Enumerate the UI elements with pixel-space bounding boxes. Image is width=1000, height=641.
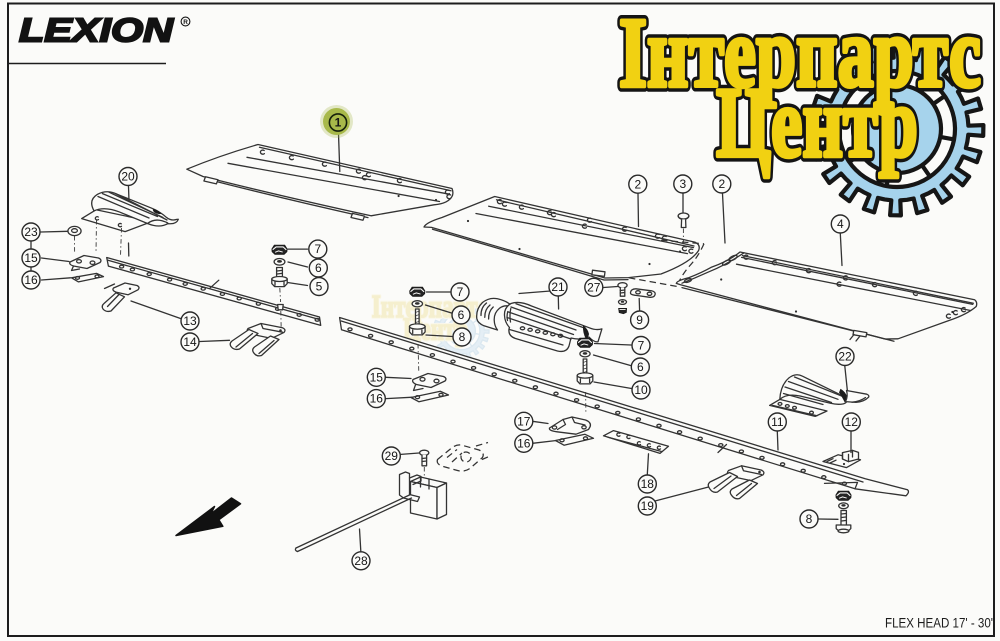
svg-text:11: 11 (771, 415, 784, 429)
svg-text:FLEX HEAD 17' - 30': FLEX HEAD 17' - 30' (885, 616, 993, 632)
svg-text:16: 16 (24, 273, 38, 287)
svg-text:12: 12 (845, 415, 859, 429)
svg-text:1: 1 (335, 116, 342, 130)
svg-text:27: 27 (587, 280, 601, 294)
svg-text:9: 9 (636, 313, 643, 327)
svg-text:4: 4 (837, 217, 844, 231)
svg-text:6: 6 (315, 261, 322, 275)
svg-text:16: 16 (370, 392, 384, 406)
svg-text:2: 2 (718, 177, 725, 191)
svg-text:19: 19 (641, 499, 655, 513)
svg-text:16: 16 (517, 436, 531, 450)
svg-text:29: 29 (385, 449, 399, 463)
svg-text:18: 18 (641, 477, 655, 491)
svg-text:5: 5 (316, 280, 323, 294)
svg-text:21: 21 (551, 280, 565, 294)
svg-text:Центр: Центр (716, 67, 918, 178)
svg-text:7: 7 (457, 285, 464, 299)
svg-text:15: 15 (24, 251, 38, 265)
svg-text:6: 6 (458, 308, 465, 322)
svg-text:7: 7 (638, 339, 645, 353)
svg-text:10: 10 (634, 383, 648, 397)
svg-text:23: 23 (24, 225, 38, 239)
svg-text:17: 17 (517, 414, 531, 428)
svg-text:3: 3 (679, 177, 686, 191)
svg-text:22: 22 (838, 350, 852, 364)
svg-text:LEXION: LEXION (19, 13, 174, 50)
svg-text:8: 8 (806, 512, 813, 526)
svg-text:6: 6 (637, 360, 644, 374)
svg-text:8: 8 (459, 330, 466, 344)
svg-text:14: 14 (183, 335, 197, 349)
svg-text:20: 20 (121, 170, 135, 184)
svg-text:13: 13 (183, 314, 197, 328)
svg-text:15: 15 (370, 370, 384, 384)
svg-text:R: R (183, 19, 188, 26)
svg-text:2: 2 (634, 177, 641, 191)
svg-text:7: 7 (314, 242, 321, 256)
svg-text:28: 28 (354, 554, 368, 568)
